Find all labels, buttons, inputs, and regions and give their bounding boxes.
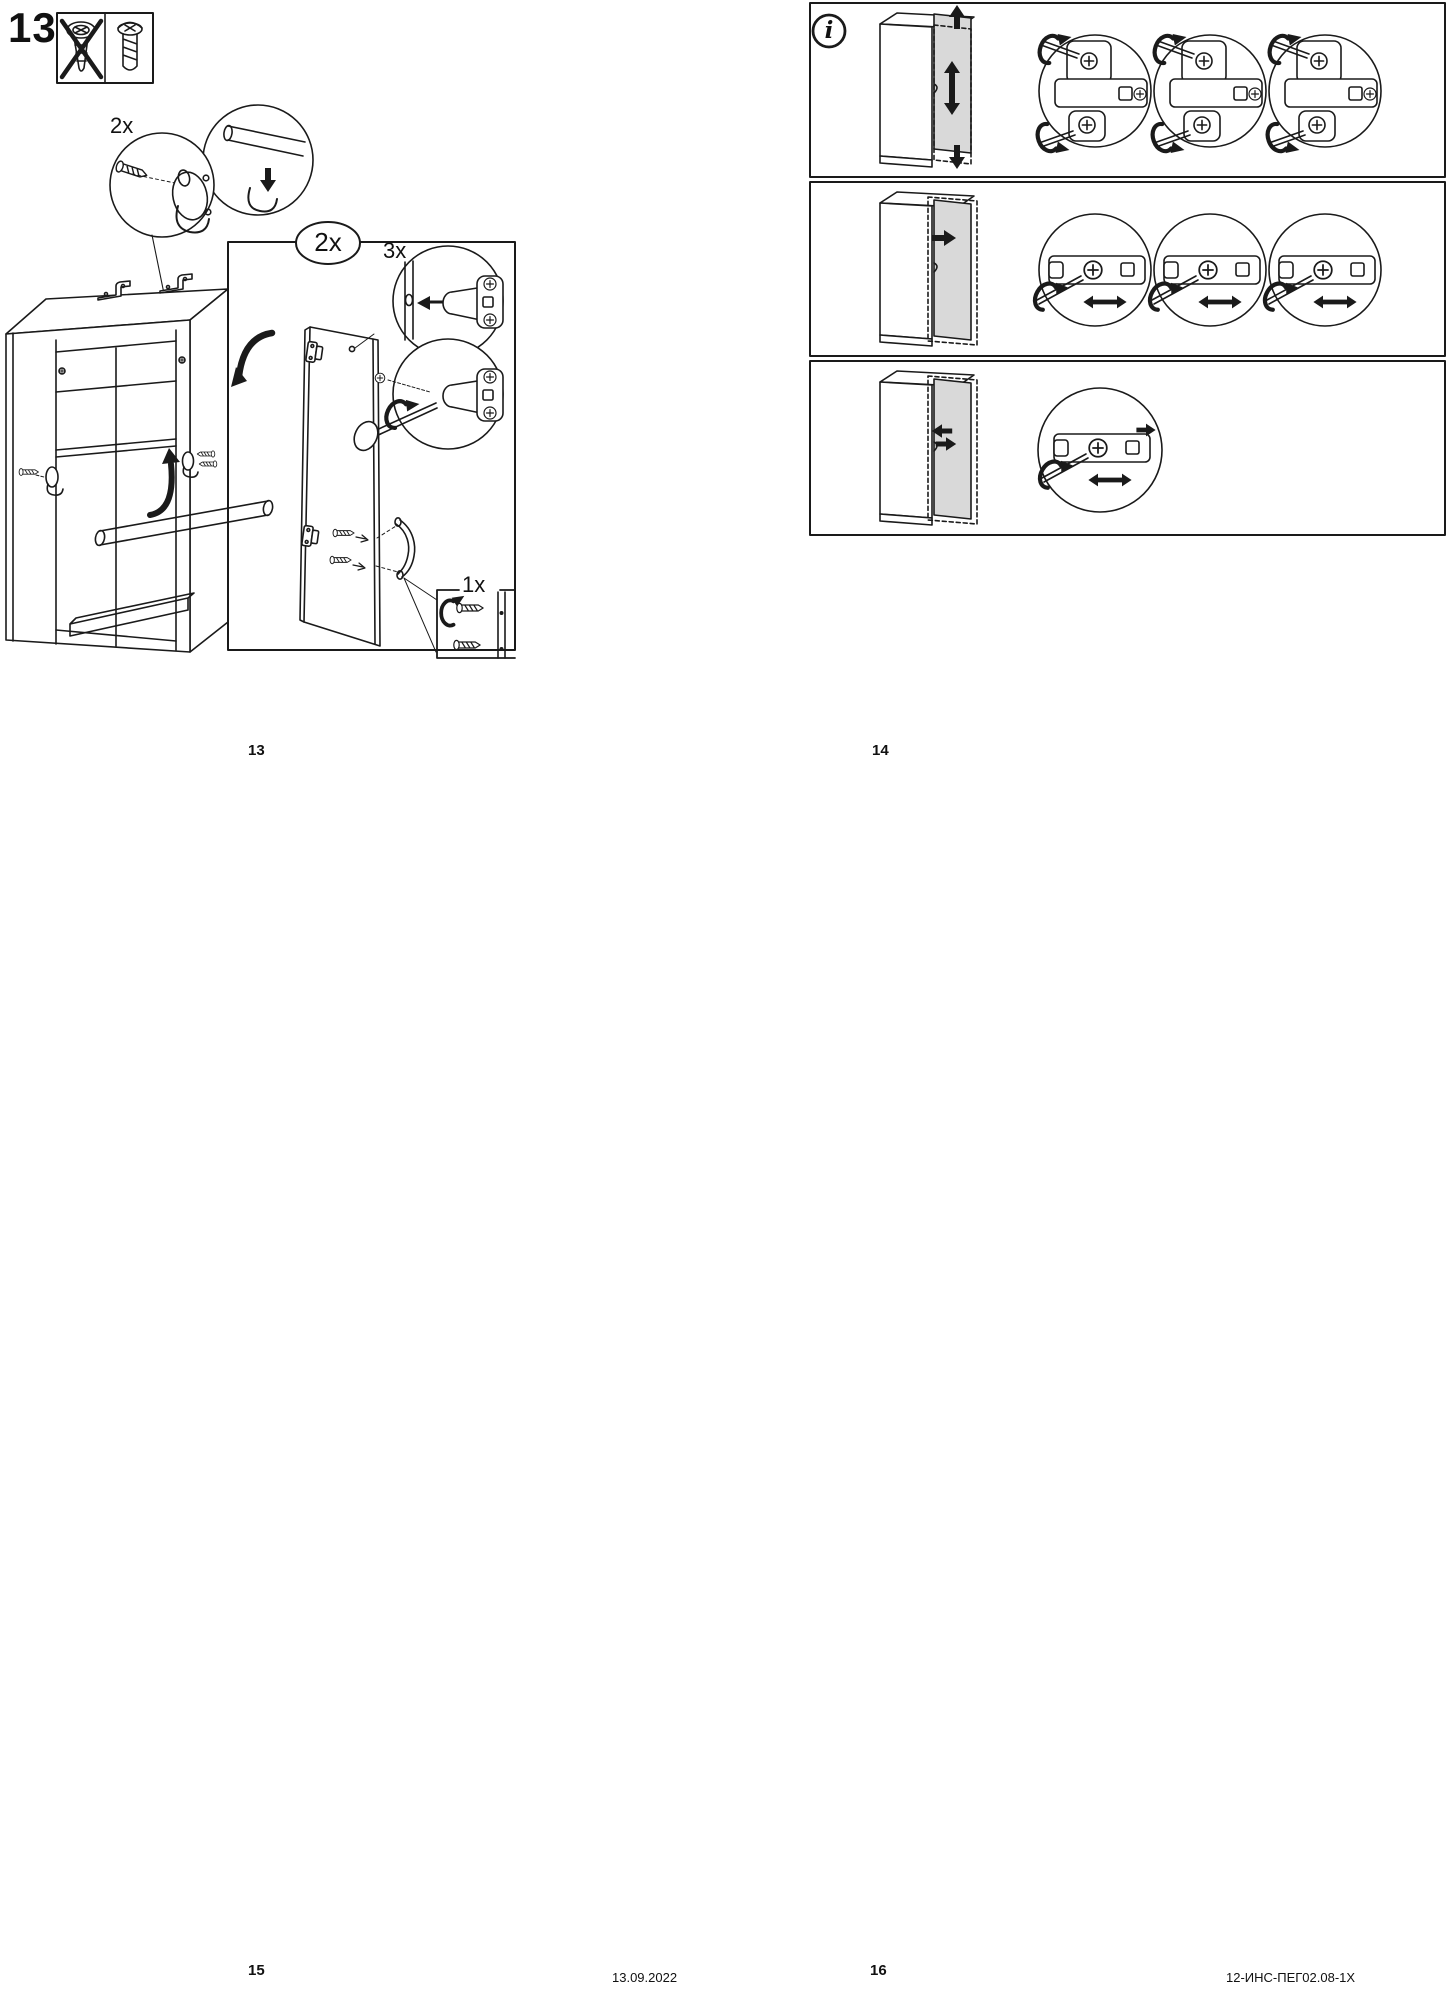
footer-document-code: 12-ИНС-ПЕГ02.08-1Х [1226,1970,1355,1985]
door-panel [300,327,380,646]
handle-screw-qty-label: 1x [462,572,485,598]
attach-door-arrow [239,333,272,376]
door-qty-label: 2x [300,227,356,258]
manual-sheet: 13 2x 2x 3x 1x i 13 14 15 13.09.2022 16 … [0,0,1450,2000]
page-number-14: 14 [872,742,889,759]
assembly-illustrations [0,0,1450,2000]
handle-screw-detail-box [437,590,515,658]
rail-holder-qty-label: 2x [110,113,133,139]
wardrobe-carcass [6,274,274,652]
page-number-13: 13 [248,742,265,759]
step-number: 13 [8,4,57,52]
angle-bracket-icon [160,274,192,293]
footer-date: 13.09.2022 [612,1970,677,1985]
info-icon-glyph: i [820,19,838,42]
screw-warning-box [57,13,153,83]
hinge-qty-label: 3x [383,238,406,264]
door-handle [376,518,415,579]
footer-page-number-16: 16 [870,1962,887,1979]
footer-page-number-15: 15 [248,1962,265,1979]
